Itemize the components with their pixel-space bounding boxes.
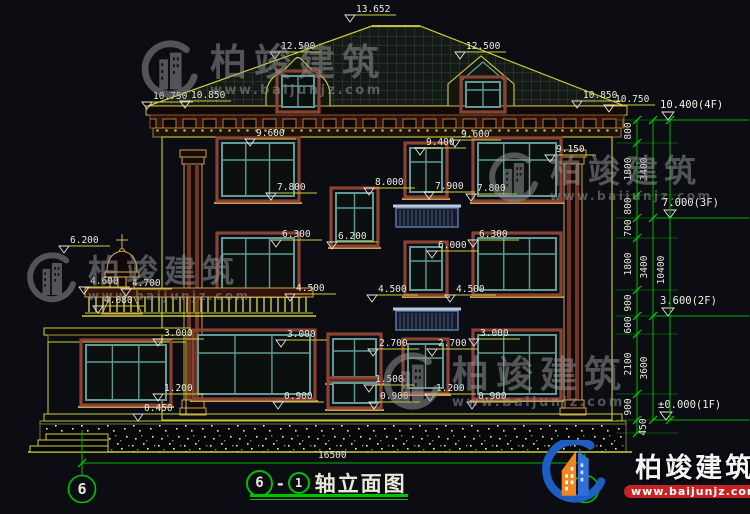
dim-label: 10.850 [191, 90, 226, 101]
dim-arrow [59, 246, 69, 253]
dim-chain-label: 600 [623, 316, 634, 333]
dim-label: 1.200 [436, 383, 465, 394]
window [214, 233, 302, 297]
dim-label: 8.000 [375, 177, 404, 188]
level-arrow [662, 112, 674, 120]
dim-label: 7.800 [477, 183, 506, 194]
dim-label: 1.200 [164, 383, 193, 394]
brand-logo-name: 柏竣建筑 [635, 454, 750, 484]
dim-arrow [273, 402, 283, 409]
level-label: ±0.000(1F) [658, 399, 721, 411]
dim-arrow [367, 295, 377, 302]
dim-chain-label: 3600 [639, 356, 650, 379]
dim-chain-label: 900 [623, 398, 634, 415]
dim-arrow [93, 306, 103, 313]
dim-chain-label: 450 [638, 418, 649, 435]
title-underline [250, 494, 408, 497]
dim-label: 6.200 [70, 235, 99, 246]
dim-arrow [270, 52, 280, 59]
cornice [146, 106, 627, 137]
dim-label: 10.850 [583, 90, 618, 101]
dim-label: 4.700 [132, 278, 161, 289]
title-axis-bubble-1: 1 [288, 472, 310, 494]
title-underline-thin [250, 499, 408, 500]
level-label: 3.600(2F) [660, 295, 717, 307]
dim-arrow [345, 15, 355, 22]
balcony-railing [393, 206, 461, 227]
dim-label: 3.000 [164, 328, 193, 339]
level-arrow [662, 308, 674, 316]
dim-label: 9.150 [556, 144, 585, 155]
dim-label: 12.500 [466, 41, 501, 52]
elevation-drawing: 13.65212.50012.50010.75010.85010.85010.7… [0, 0, 750, 514]
brand-logo-icon [534, 440, 620, 512]
brand-logo: 柏竣建筑 www.baijunjz.com [534, 440, 750, 512]
dim-arrow [467, 402, 477, 409]
dim-label: 16500 [318, 450, 347, 461]
dim-chain-label: 800 [623, 197, 634, 214]
dim-chain-label: 3400 [639, 157, 650, 180]
dim-label: 0.900 [284, 391, 313, 402]
dim-label: 6.000 [438, 240, 467, 251]
dim-label: 2.700 [438, 338, 467, 349]
dim-chain-label: 2100 [623, 352, 634, 375]
cad-canvas: 13.65212.50012.50010.75010.85010.85010.7… [0, 0, 750, 514]
dim-label: 9.600 [461, 129, 490, 140]
balcony-railing [393, 309, 461, 330]
pilaster-right [560, 150, 586, 415]
dim-label: 6.200 [338, 231, 367, 242]
dim-label: 2.700 [379, 338, 408, 349]
dim-label: 1.500 [375, 374, 404, 385]
plinth [40, 414, 626, 424]
dim-label: 0.900 [380, 391, 409, 402]
dim-label: 7.900 [435, 181, 464, 192]
dim-label: 3.000 [480, 328, 509, 339]
window [461, 77, 505, 112]
dim-label: 4.500 [378, 284, 407, 295]
dim-label: 4.500 [456, 284, 485, 295]
dim-label: 4.500 [296, 283, 325, 294]
dim-chain-label: 3400 [639, 255, 650, 278]
level-label: 10.400(4F) [660, 99, 723, 111]
dim-label: 12.500 [281, 41, 316, 52]
window [78, 340, 174, 407]
dim-label: 0.450 [144, 403, 173, 414]
dim-label: 3.000 [287, 329, 316, 340]
dim-label: 4.600 [90, 276, 119, 287]
dim-chain-label: 1800 [623, 252, 634, 275]
dim-label: 0.900 [478, 391, 507, 402]
dim-label: 6.300 [479, 229, 508, 240]
dim-label: 10.750 [615, 94, 650, 105]
dim-chain-label: 900 [623, 294, 634, 311]
dim-label: 10.750 [153, 91, 188, 102]
dim-label: 7.800 [277, 182, 306, 193]
title-separator: - [277, 474, 284, 493]
dim-chain-label: 1800 [623, 157, 634, 180]
dim-label: 6.300 [282, 229, 311, 240]
dim-chain-label: 10400 [656, 255, 667, 284]
window [277, 71, 319, 112]
dim-chain-label: 700 [623, 219, 634, 236]
dim-arrow [133, 414, 143, 421]
dim-label: 9.400 [426, 137, 455, 148]
dim-label: 13.652 [356, 4, 390, 15]
brand-logo-url: www.baijunjz.com [624, 485, 750, 498]
title-axis-bubble-6: 6 [246, 470, 273, 497]
dim-label: 4.080 [104, 295, 133, 306]
dim-chain-label: 800 [623, 122, 634, 139]
dim-label: 9.600 [256, 128, 285, 139]
level-label: 7.000(3F) [662, 197, 719, 209]
axis-bubble-label: 6 [77, 480, 86, 498]
